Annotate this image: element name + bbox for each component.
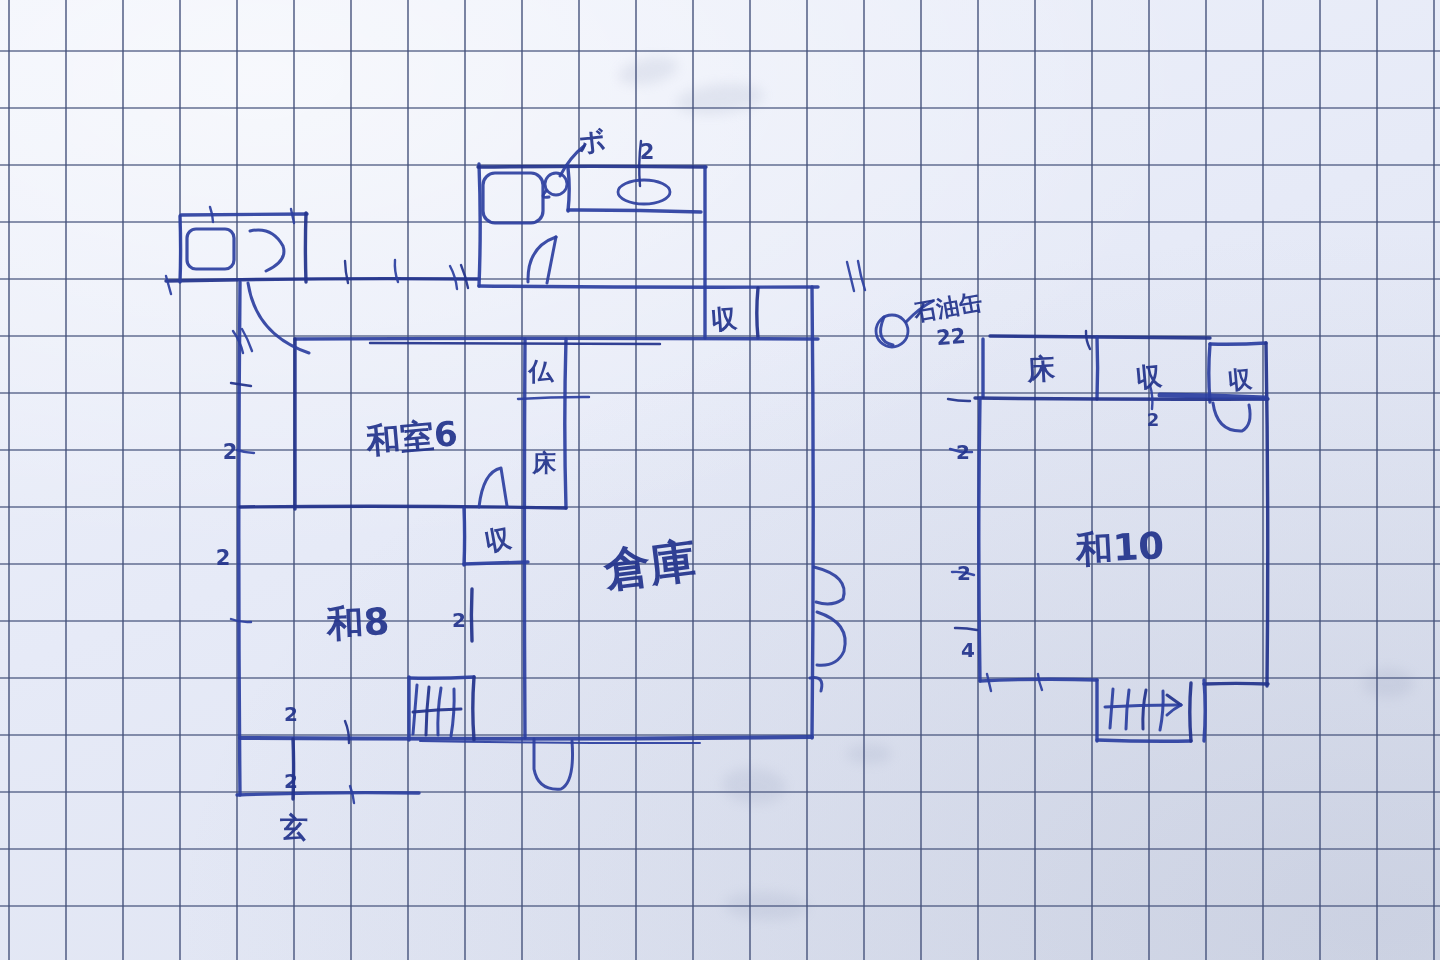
tokonoma-label: 床 (531, 449, 557, 477)
stair-hatch (1110, 689, 1113, 728)
wall-line (240, 506, 566, 508)
wall-line (1190, 683, 1191, 741)
oilcan-curl (881, 317, 893, 345)
wall-line (473, 677, 474, 740)
graph-paper-sheet: ボ2収仏和室6床収倉庫和822222玄石油缶22床収2収和10224 (0, 0, 1440, 960)
wall-line (237, 793, 419, 795)
wall-line (305, 213, 306, 282)
boiler-note: ボ (577, 124, 608, 158)
grid-layer (0, 0, 1440, 960)
wall-line (812, 287, 813, 738)
wall-line (479, 164, 480, 286)
dim-left-1: 2 (223, 440, 238, 464)
wall-line (166, 279, 479, 281)
wall-line (1204, 683, 1268, 684)
dimension-tick (847, 262, 854, 291)
boiler-circle (545, 173, 567, 195)
butsudan-label: 仏 (528, 357, 555, 386)
dimension-tick (987, 674, 991, 691)
wall-line (239, 282, 240, 795)
stair-hatch (451, 689, 454, 736)
dim-left-2: 2 (216, 546, 231, 570)
bottom-door-arc (534, 739, 573, 789)
warehouse-door-arc-2 (817, 612, 845, 665)
oilcan-qty: 22 (935, 324, 966, 350)
washitsu6-door-arc (479, 468, 507, 507)
dimension-tick (242, 329, 252, 351)
wall-line (370, 343, 660, 344)
wall-line (1160, 395, 1266, 398)
wall-line (979, 398, 980, 681)
wall-line (479, 286, 818, 287)
dim-bath-top: 2 (640, 140, 655, 164)
wall-line (295, 338, 818, 339)
genkan-label: 玄 (279, 811, 308, 844)
warehouse-door-arc-1 (814, 567, 844, 604)
wall-line (471, 589, 472, 641)
stair-hatch (413, 685, 417, 734)
floorplan-sketch: ボ2収仏和室6床収倉庫和822222玄石油缶22床収2収和10224 (0, 0, 1440, 960)
dimension-tick (955, 628, 977, 630)
closet-top-label: 収 (710, 303, 739, 335)
wall-line (568, 210, 701, 212)
closet-mid-label: 収 (483, 523, 515, 557)
sketch-layer (166, 141, 1268, 803)
wall-line (1210, 343, 1266, 344)
stair-hatch (1160, 691, 1163, 730)
washitsu6-label: 和室6 (364, 413, 460, 461)
dim-stair-left: 2 (452, 608, 466, 632)
dim-right-3: 4 (961, 638, 975, 662)
wall-line (181, 214, 307, 215)
dimension-tick (1038, 674, 1042, 690)
stair-hatch (1143, 690, 1146, 729)
closet-right1-label: 収 (1135, 361, 1165, 393)
dim-closet-right: 2 (1147, 409, 1160, 430)
stair-hatch (1167, 705, 1181, 715)
stair-hatch (1105, 705, 1181, 707)
bath-window (483, 173, 543, 223)
stair-hatch (1126, 690, 1129, 729)
dim-genkan-1: 2 (284, 702, 298, 726)
dim-right-1: 2 (956, 440, 970, 464)
dim-right-2: 2 (957, 561, 971, 585)
dimension-tick (231, 383, 251, 386)
washitsu8-label: 和8 (325, 600, 391, 646)
wall-line (1204, 680, 1205, 741)
wall-line (568, 168, 569, 211)
wall-line (990, 336, 1210, 338)
stair-hatch (438, 688, 441, 735)
wall-line (478, 166, 706, 167)
wall-line (757, 288, 758, 338)
toilet-door-arc (250, 230, 284, 271)
wall-line (464, 562, 528, 564)
wall-line (1266, 343, 1268, 686)
warehouse-label: 倉庫 (600, 533, 699, 598)
wall-line (464, 508, 465, 565)
wall-line (565, 339, 566, 508)
bath-door-leaf (547, 237, 556, 283)
closet-right-door-arc (1213, 403, 1250, 431)
wall-line (420, 741, 700, 743)
wall-line (240, 737, 812, 739)
dimension-tick (1086, 331, 1090, 349)
wall-line (409, 677, 474, 678)
washitsu10-label: 和10 (1074, 524, 1166, 572)
toilet-door-swing (248, 283, 309, 353)
dimension-tick (948, 399, 970, 401)
wall-line (180, 216, 181, 282)
sink-bowl (618, 180, 670, 204)
toilet-window (187, 229, 234, 269)
tokonoma-right-label: 床 (1025, 352, 1056, 386)
closet-right2-label: 収 (1227, 365, 1254, 395)
dim-genkan-2: 2 (284, 769, 298, 793)
wall-line (1097, 740, 1191, 741)
wall-line (1097, 337, 1098, 399)
